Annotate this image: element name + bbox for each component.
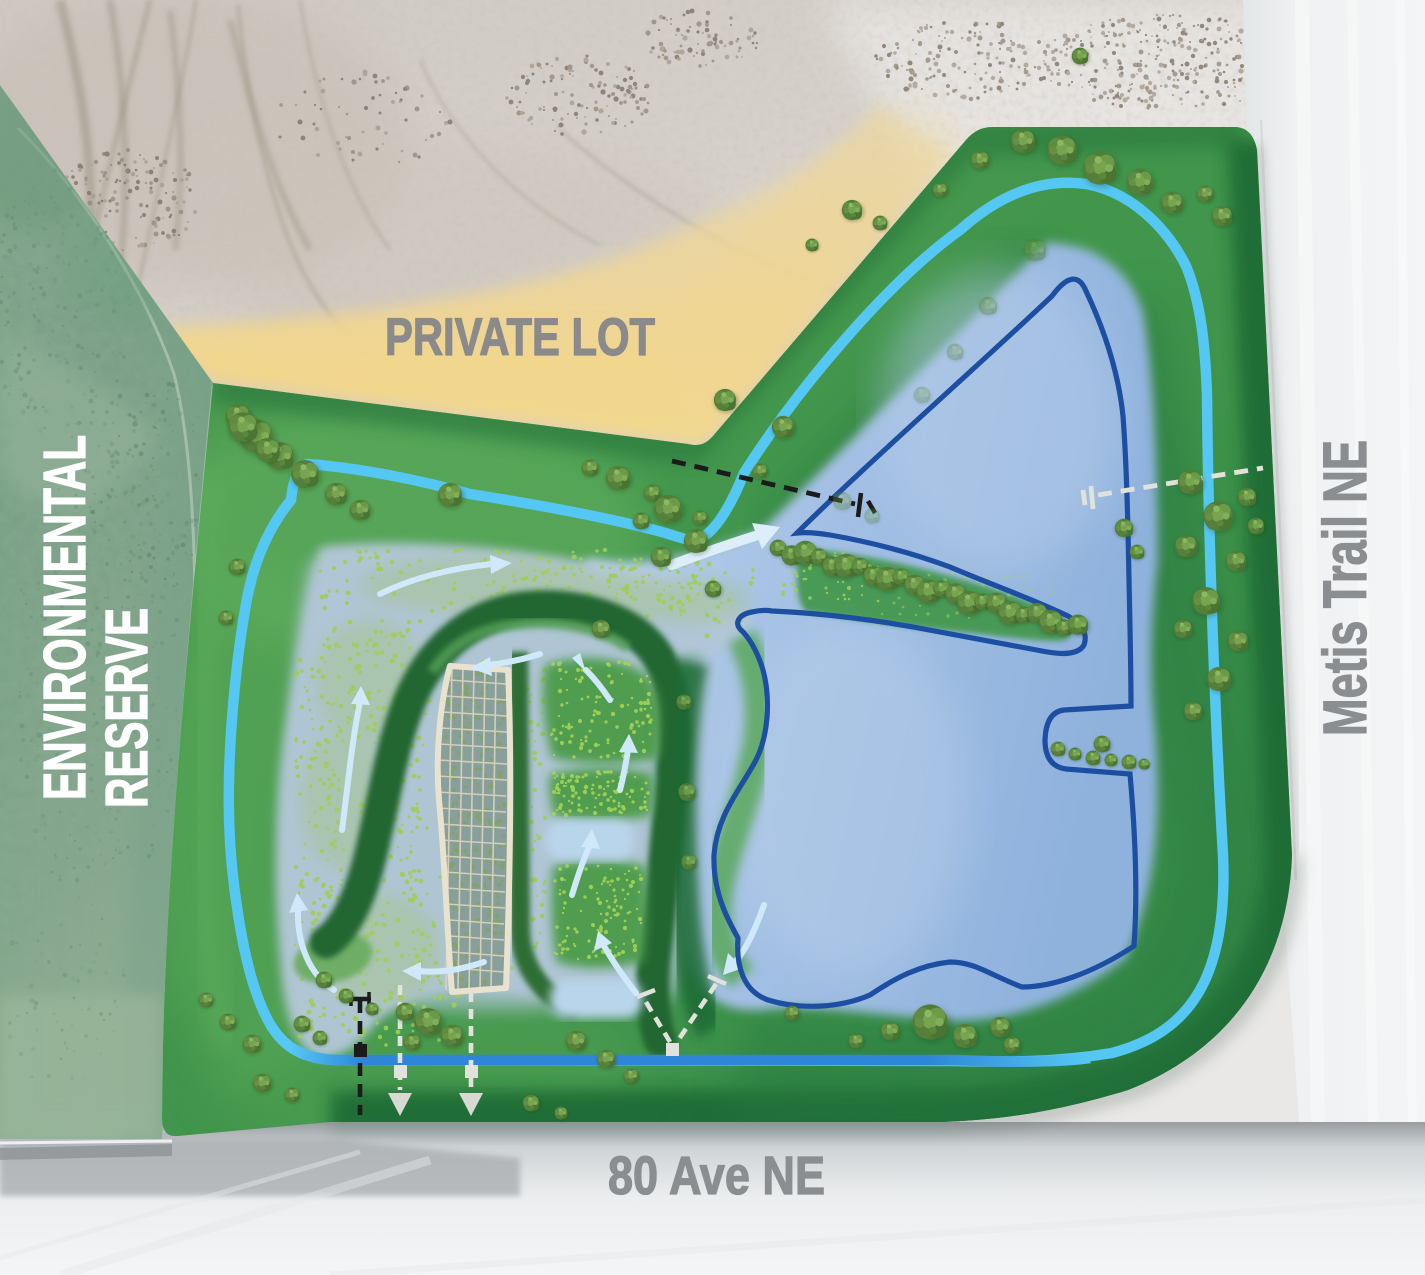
svg-text:PRIVATE LOT: PRIVATE LOT [385, 308, 655, 367]
svg-text:Metis Trail NE: Metis Trail NE [1311, 440, 1379, 736]
svg-text:ENVIRONMENTAL: ENVIRONMENTAL [32, 435, 98, 800]
svg-text:RESERVE: RESERVE [94, 608, 160, 808]
svg-text:80 Ave NE: 80 Ave NE [608, 1146, 825, 1206]
